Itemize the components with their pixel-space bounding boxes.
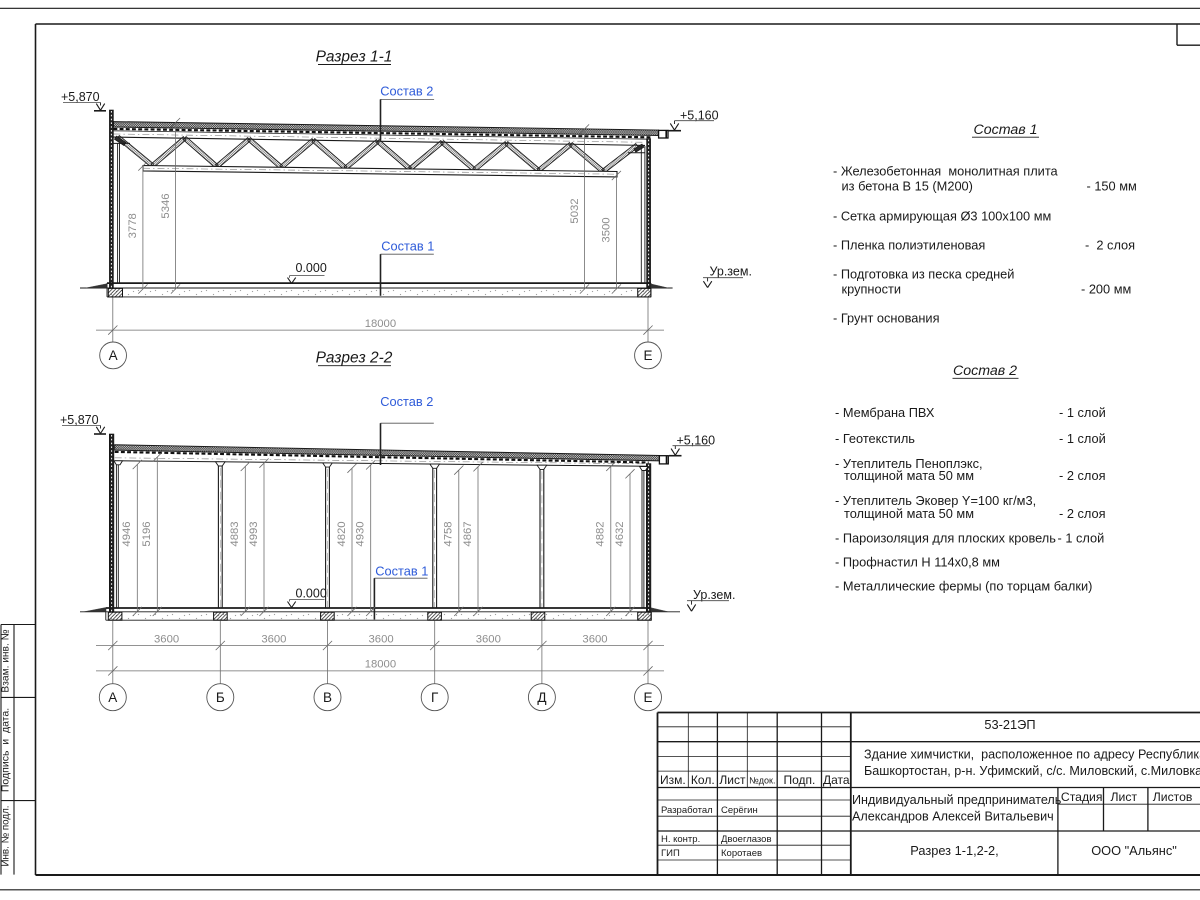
svg-text:- 150 мм: - 150 мм (1087, 179, 1137, 194)
svg-text:А: А (109, 348, 118, 363)
svg-text:5032: 5032 (569, 198, 581, 223)
svg-text:3600: 3600 (369, 634, 394, 646)
svg-text:Лист: Лист (719, 773, 746, 787)
svg-text:18000: 18000 (365, 318, 396, 330)
svg-text:из бетона В 15 (М200): из бетона В 15 (М200) (842, 179, 973, 194)
svg-text:- 1 слой: - 1 слой (1059, 431, 1106, 446)
svg-text:Разработал: Разработал (661, 805, 713, 816)
svg-text:Подп.: Подп. (783, 773, 815, 787)
svg-text:Двоеглазов: Двоеглазов (721, 834, 772, 845)
svg-text:- 2 слоя: - 2 слоя (1059, 468, 1106, 483)
svg-text:4946: 4946 (121, 521, 133, 546)
svg-text:Стадия: Стадия (1061, 790, 1103, 804)
svg-text:Ур.зем.: Ур.зем. (693, 588, 735, 602)
svg-text:В: В (323, 690, 332, 705)
svg-text:Кол.: Кол. (691, 773, 715, 787)
svg-text:3600: 3600 (476, 634, 501, 646)
svg-text:- 1 слой: - 1 слой (1059, 405, 1106, 420)
svg-text:Разрез 2-2: Разрез 2-2 (316, 350, 393, 367)
svg-text:№док.: №док. (749, 776, 775, 786)
svg-text:Состав 2: Состав 2 (380, 84, 433, 99)
svg-text:- 2 слоя: - 2 слоя (1085, 238, 1135, 253)
svg-text:- Мембрана ПВХ: - Мембрана ПВХ (835, 405, 935, 420)
svg-text:ООО "Альянс": ООО "Альянс" (1091, 843, 1177, 858)
svg-text:- 2 слоя: - 2 слоя (1059, 506, 1106, 521)
svg-text:- Пароизоляция для плоских кро: - Пароизоляция для плоских кровель (835, 531, 1056, 546)
svg-text:4758: 4758 (443, 521, 455, 546)
svg-text:Коротаев: Коротаев (721, 848, 762, 859)
svg-text:Г: Г (431, 690, 439, 705)
svg-text:крупности: крупности (842, 282, 902, 297)
svg-text:толщиной мата 50 мм: толщиной мата 50 мм (844, 468, 974, 483)
svg-text:+5,870: +5,870 (60, 413, 99, 427)
svg-text:толщиной мата 50 мм: толщиной мата 50 мм (844, 506, 974, 521)
svg-text:Лист: Лист (1111, 790, 1138, 804)
svg-text:Александров Алексей Витальевич: Александров Алексей Витальевич (852, 809, 1054, 823)
svg-text:Дата: Дата (823, 773, 850, 787)
svg-text:- Грунт основания: - Грунт основания (833, 310, 940, 325)
svg-text:Серёгин: Серёгин (721, 805, 758, 816)
svg-text:Башкортостан, р-н. Уфимский, с: Башкортостан, р-н. Уфимский, с/с. Миловс… (864, 764, 1200, 778)
svg-text:Изм.: Изм. (660, 773, 686, 787)
svg-text:А: А (108, 690, 117, 705)
svg-text:- Сетка армирующая Ø3 100х100: - Сетка армирующая Ø3 100х100 мм (833, 209, 1051, 224)
svg-text:4867: 4867 (462, 521, 474, 546)
svg-text:ГИП: ГИП (661, 848, 680, 859)
svg-text:0.000: 0.000 (296, 261, 327, 275)
svg-text:Д: Д (537, 690, 546, 705)
svg-text:- 1 слой: - 1 слой (1058, 531, 1105, 546)
svg-text:Состав 2: Состав 2 (953, 363, 1017, 379)
svg-text:5196: 5196 (141, 521, 153, 546)
svg-text:Взам. инв. №: Взам. инв. № (1, 629, 12, 692)
svg-text:4820: 4820 (336, 521, 348, 546)
svg-text:Состав 1: Состав 1 (381, 238, 434, 253)
svg-text:3778: 3778 (127, 213, 139, 238)
svg-text:- Профнастил Н 114х0,8 мм: - Профнастил Н 114х0,8 мм (835, 555, 1000, 570)
svg-text:5346: 5346 (160, 193, 172, 218)
svg-text:- 200 мм: - 200 мм (1081, 282, 1131, 297)
svg-text:- Геотекстиль: - Геотекстиль (835, 431, 915, 446)
svg-text:Листов: Листов (1153, 790, 1193, 804)
svg-text:3600: 3600 (154, 634, 179, 646)
svg-text:Состав 2: Состав 2 (380, 394, 433, 409)
svg-text:4883: 4883 (229, 521, 241, 546)
svg-text:+5,160: +5,160 (677, 433, 716, 447)
svg-text:4993: 4993 (248, 521, 260, 546)
svg-text:+5,160: +5,160 (680, 108, 719, 122)
svg-text:Е: Е (643, 348, 652, 363)
svg-text:18000: 18000 (365, 658, 396, 670)
svg-text:Ур.зем.: Ур.зем. (710, 264, 752, 278)
svg-text:Подпись и дата.: Подпись и дата. (0, 708, 12, 792)
svg-text:+5,870: +5,870 (61, 90, 100, 104)
svg-text:Разрез 1-1,2-2,: Разрез 1-1,2-2, (910, 843, 998, 858)
svg-text:53-21ЭП: 53-21ЭП (984, 717, 1035, 732)
svg-text:- Железобетонная монолитная п: - Железобетонная монолитная плита (833, 164, 1059, 179)
svg-text:0.000: 0.000 (296, 587, 327, 601)
svg-text:Инв. № подл.: Инв. № подл. (1, 805, 12, 866)
svg-text:Разрез 1-1: Разрез 1-1 (316, 49, 393, 66)
svg-text:Состав 1: Состав 1 (375, 563, 428, 578)
svg-text:Н. контр.: Н. контр. (661, 834, 700, 845)
svg-text:Здание химчистки, расположенн: Здание химчистки, расположенное по адрес… (864, 747, 1200, 761)
svg-text:3600: 3600 (261, 634, 286, 646)
svg-text:4882: 4882 (595, 521, 607, 546)
svg-text:Индивидуальный предприниматель: Индивидуальный предприниматель (852, 793, 1062, 807)
svg-text:- Подготовка из песка средней: - Подготовка из песка средней (833, 266, 1014, 281)
svg-text:Б: Б (216, 690, 225, 705)
svg-text:Состав 1: Состав 1 (973, 122, 1037, 138)
svg-text:4930: 4930 (355, 521, 367, 546)
svg-text:- Пленка полиэтиленовая: - Пленка полиэтиленовая (833, 238, 985, 253)
svg-text:4632: 4632 (614, 521, 626, 546)
svg-text:3600: 3600 (582, 634, 607, 646)
svg-text:3500: 3500 (601, 217, 613, 242)
svg-text:Е: Е (643, 690, 652, 705)
svg-text:- Металлические фермы (по торц: - Металлические фермы (по торцам балки) (835, 579, 1092, 594)
